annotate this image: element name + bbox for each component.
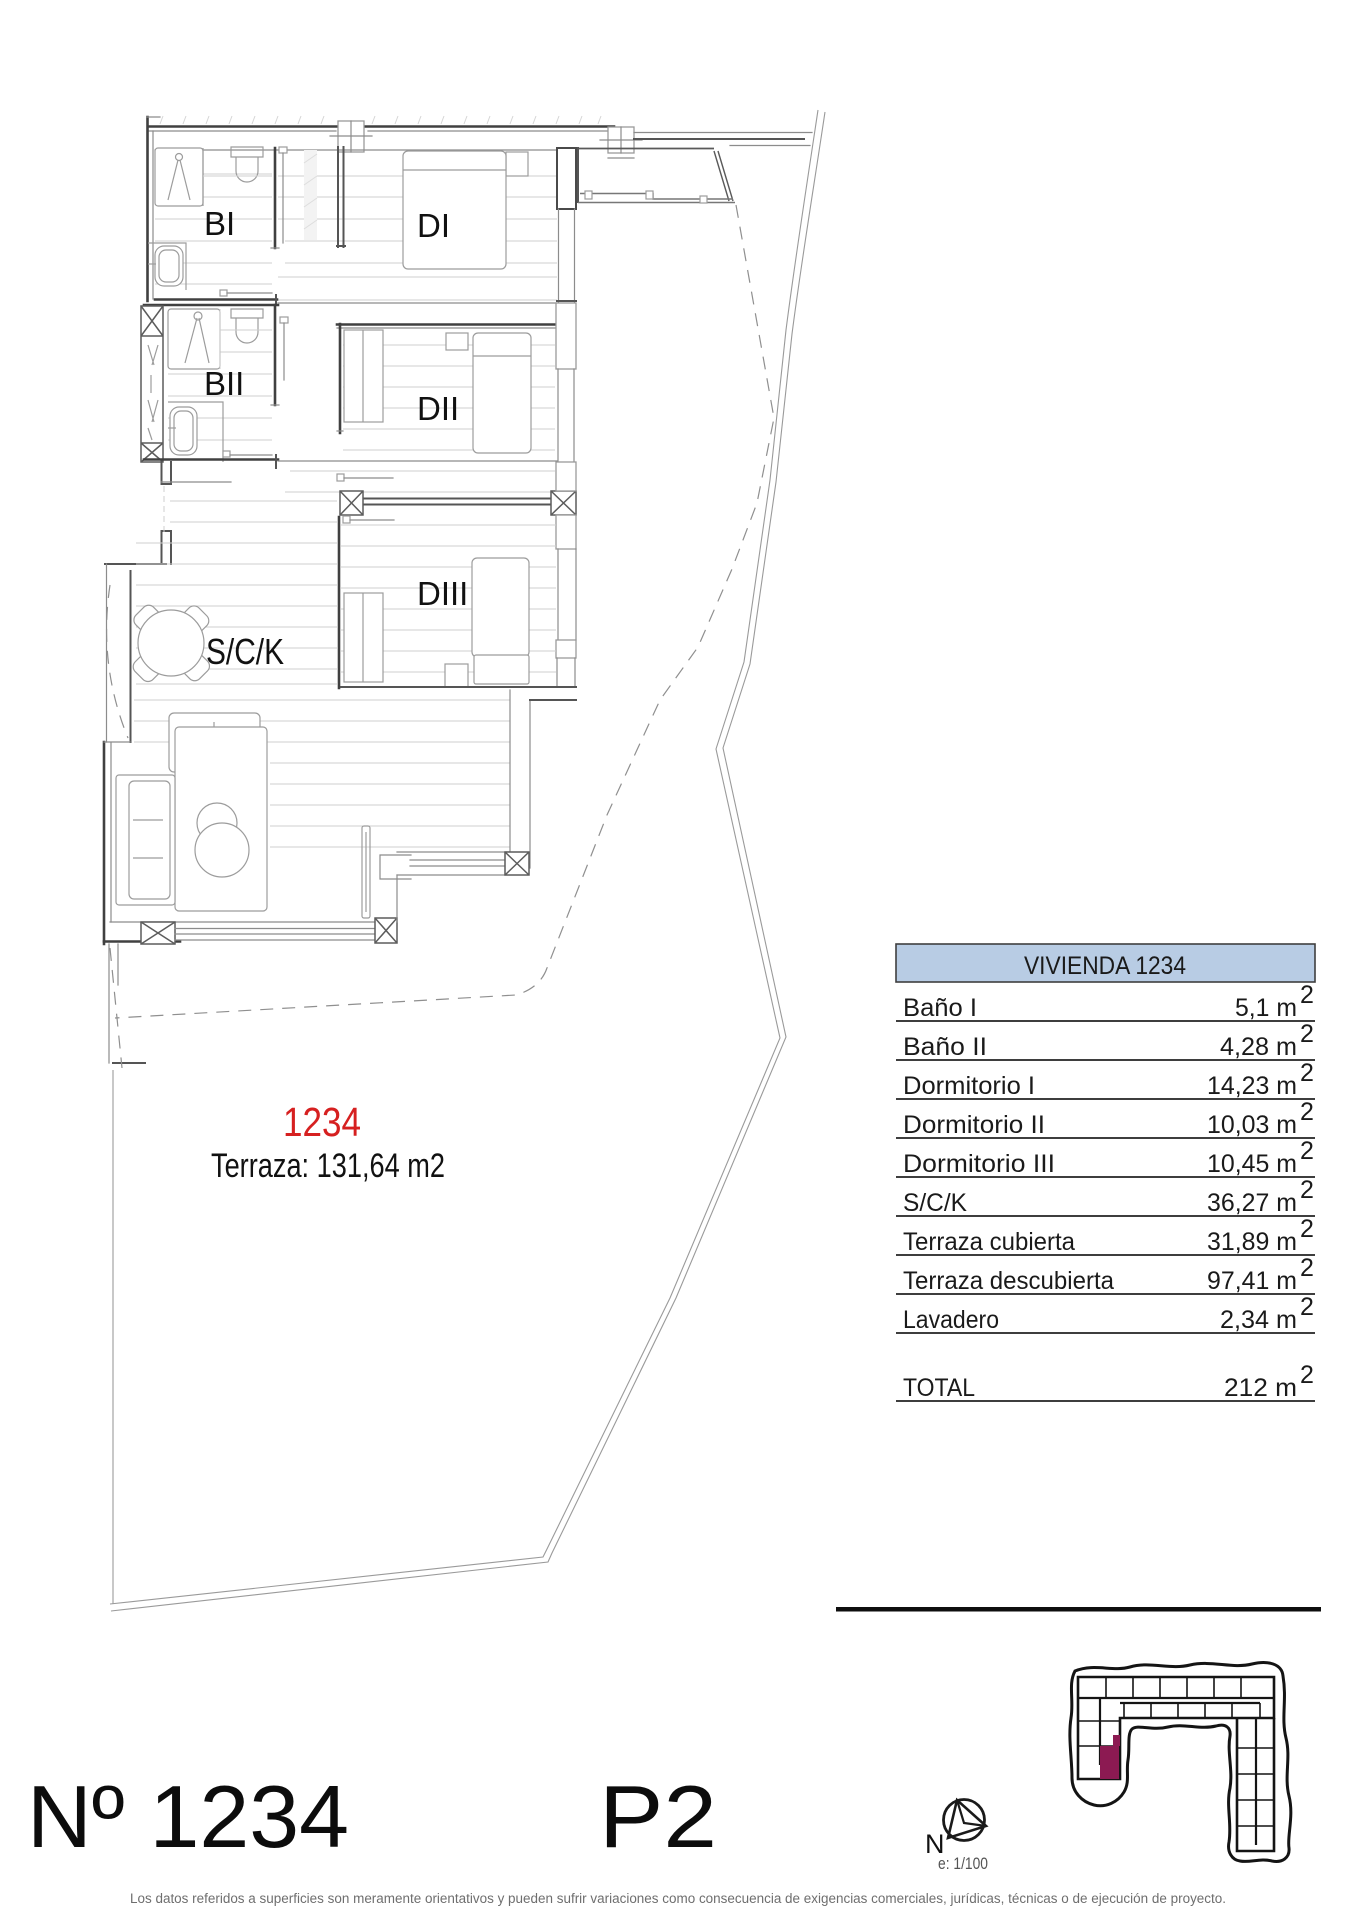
svg-text:2: 2 xyxy=(1300,1176,1314,1204)
svg-text:2: 2 xyxy=(1300,1293,1314,1321)
svg-text:Terraza: 131,64 m2: Terraza: 131,64 m2 xyxy=(211,1147,445,1185)
svg-text:2: 2 xyxy=(1300,1059,1314,1087)
svg-text:DII: DII xyxy=(417,390,459,427)
svg-text:Terraza descubierta: Terraza descubierta xyxy=(903,1267,1114,1295)
svg-text:e: 1/100: e: 1/100 xyxy=(938,1855,988,1873)
svg-text:P2: P2 xyxy=(599,1767,717,1866)
svg-text:2: 2 xyxy=(1300,1361,1314,1389)
svg-text:VIVIENDA 1234: VIVIENDA 1234 xyxy=(1024,952,1186,980)
svg-text:Lavadero: Lavadero xyxy=(903,1306,999,1334)
svg-text:212 m: 212 m xyxy=(1224,1374,1297,1402)
svg-text:Dormitorio I: Dormitorio I xyxy=(903,1072,1035,1100)
svg-text:2: 2 xyxy=(1300,1137,1314,1165)
svg-text:97,41 m: 97,41 m xyxy=(1207,1267,1297,1295)
svg-text:Baño II: Baño II xyxy=(903,1033,987,1061)
svg-text:14,23 m: 14,23 m xyxy=(1207,1072,1297,1100)
svg-text:DI: DI xyxy=(417,207,450,244)
svg-text:TOTAL: TOTAL xyxy=(903,1374,975,1402)
svg-text:2: 2 xyxy=(1300,1254,1314,1282)
svg-text:Dormitorio III: Dormitorio III xyxy=(903,1150,1055,1178)
svg-text:5,1 m: 5,1 m xyxy=(1235,994,1297,1022)
svg-text:Terraza cubierta: Terraza cubierta xyxy=(903,1228,1075,1256)
svg-text:BI: BI xyxy=(204,205,235,242)
svg-text:2,34 m: 2,34 m xyxy=(1220,1306,1297,1334)
svg-text:2: 2 xyxy=(1300,981,1314,1009)
svg-text:36,27 m: 36,27 m xyxy=(1207,1189,1297,1217)
svg-text:Los datos referidos a superfic: Los datos referidos a superficies son me… xyxy=(130,1891,1226,1906)
svg-text:S/C/K: S/C/K xyxy=(903,1189,967,1217)
svg-text:2: 2 xyxy=(1300,1098,1314,1126)
svg-text:Baño I: Baño I xyxy=(903,994,977,1022)
svg-text:Nº 1234: Nº 1234 xyxy=(27,1767,349,1866)
svg-text:S/C/K: S/C/K xyxy=(206,631,284,672)
svg-text:Dormitorio II: Dormitorio II xyxy=(903,1111,1045,1139)
svg-text:1234: 1234 xyxy=(283,1099,361,1145)
svg-text:DIII: DIII xyxy=(417,575,468,612)
svg-text:4,28 m: 4,28 m xyxy=(1220,1033,1297,1061)
svg-text:10,45 m: 10,45 m xyxy=(1207,1150,1297,1178)
svg-text:10,03 m: 10,03 m xyxy=(1207,1111,1297,1139)
svg-text:2: 2 xyxy=(1300,1215,1314,1243)
svg-text:BII: BII xyxy=(204,365,244,402)
svg-text:31,89 m: 31,89 m xyxy=(1207,1228,1297,1256)
svg-text:2: 2 xyxy=(1300,1020,1314,1048)
